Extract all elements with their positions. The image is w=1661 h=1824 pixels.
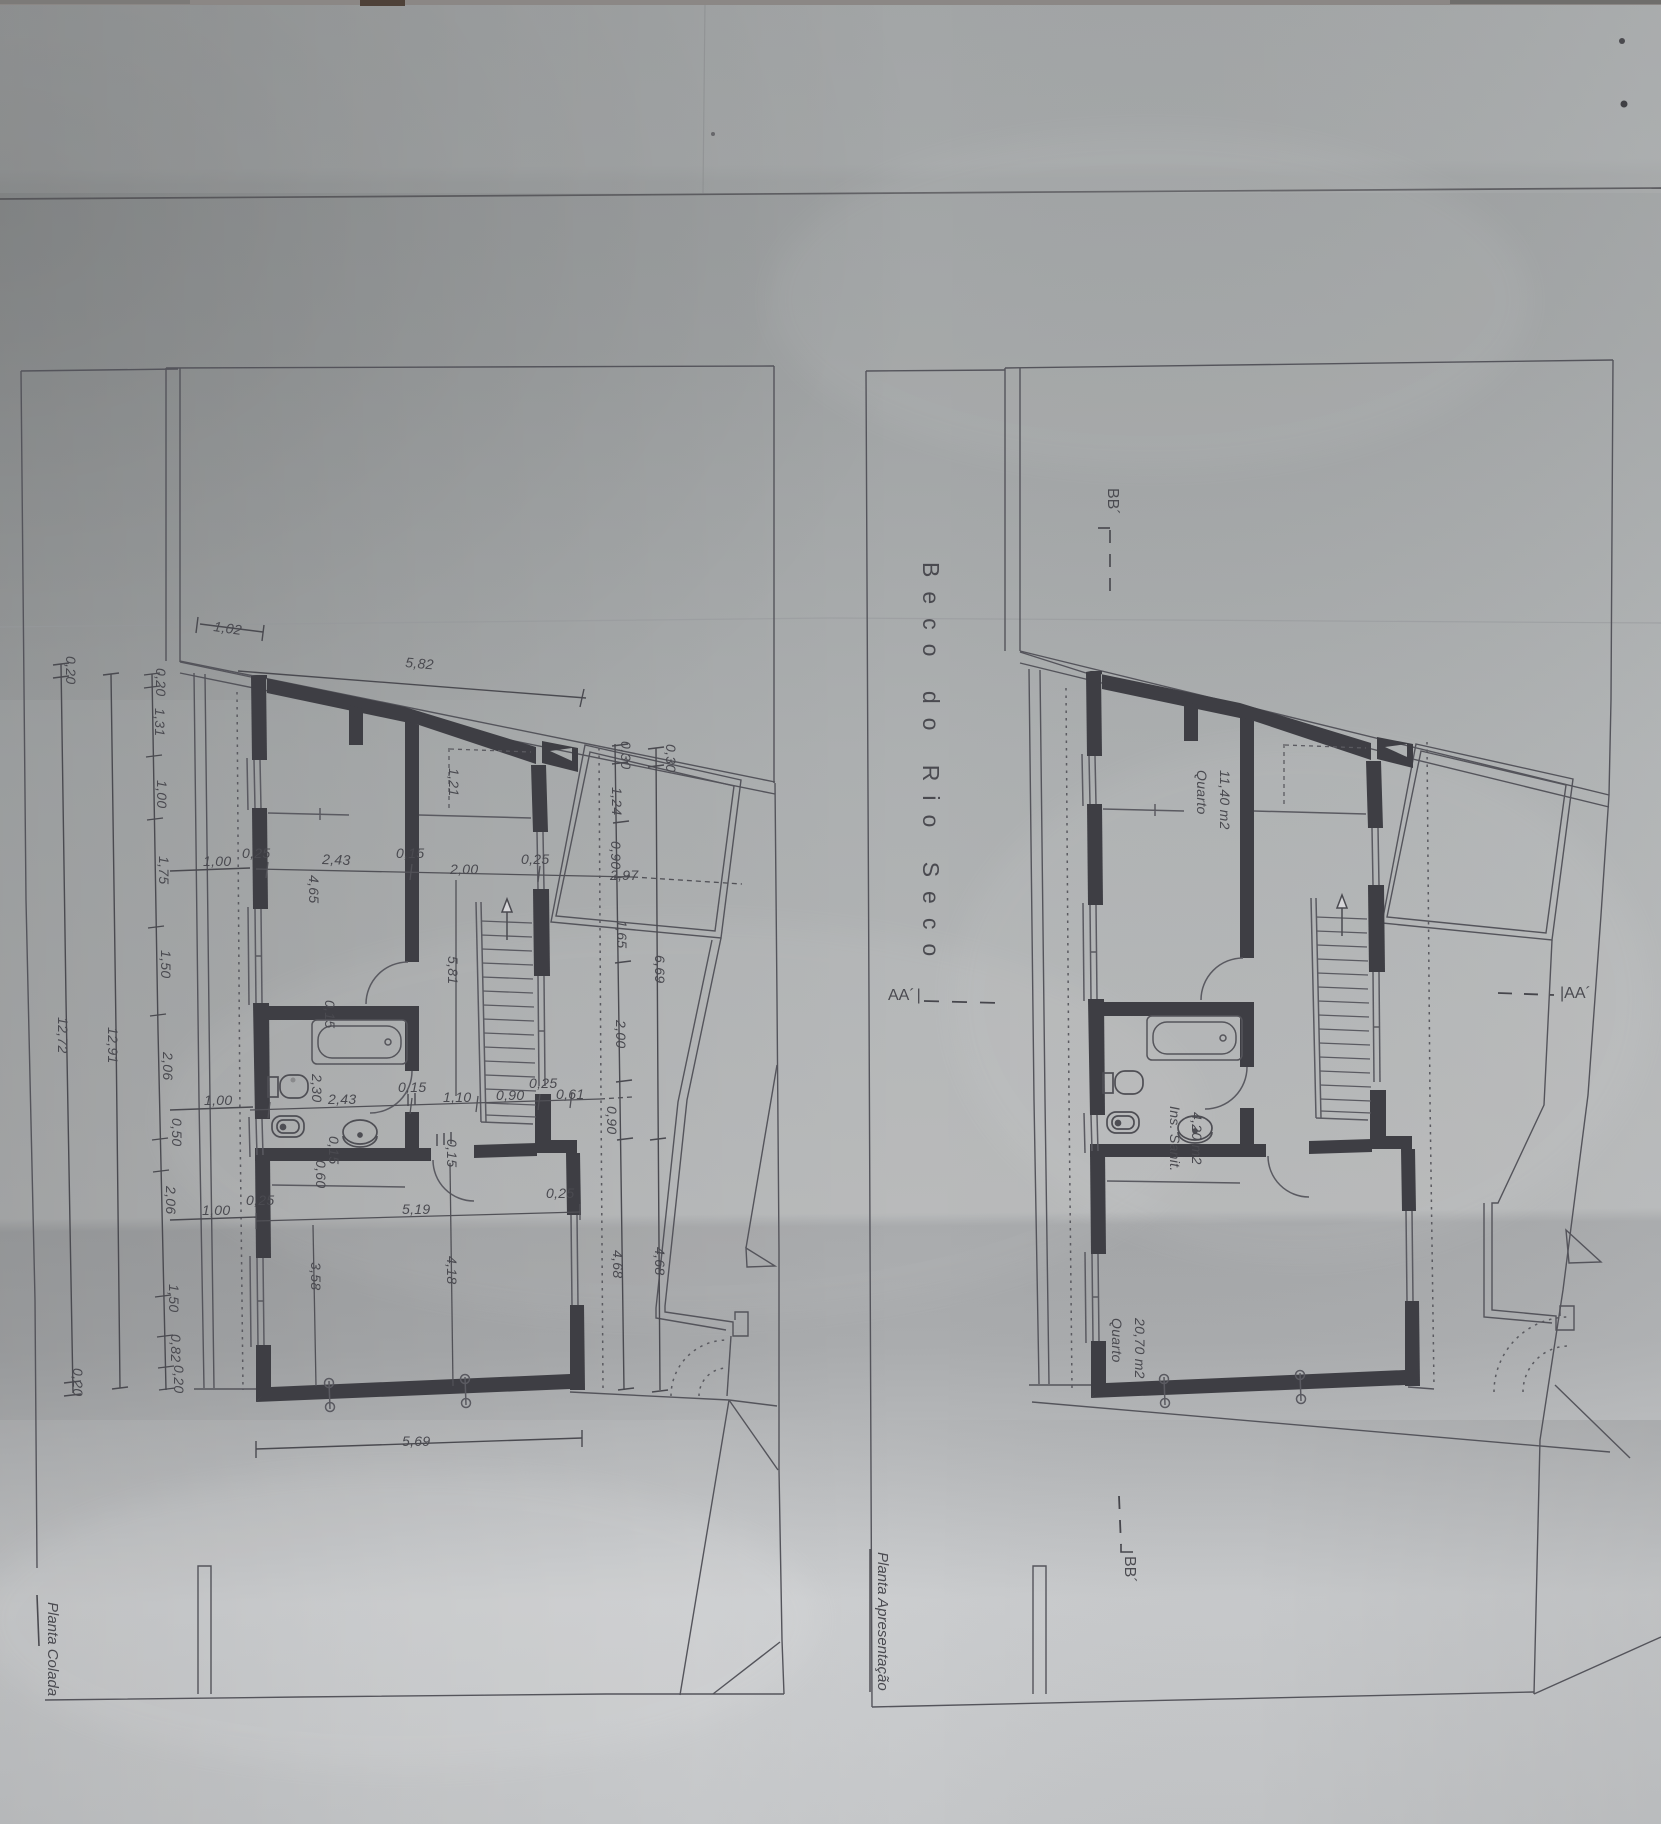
svg-text:2,97: 2,97 [609,867,639,883]
svg-text:2,00: 2,00 [449,861,478,877]
svg-text:5,69: 5,69 [402,1433,430,1449]
svg-text:Planta Colada: Planta Colada [44,1602,61,1696]
svg-text:1,00: 1,00 [202,1202,230,1218]
svg-text:12,91: 12,91 [105,1027,121,1064]
svg-text:0,50: 0,50 [169,1118,185,1146]
svg-text:12,72: 12,72 [55,1017,71,1054]
svg-text:2,43: 2,43 [327,1091,356,1107]
svg-text:AA´|: AA´| [888,987,921,1004]
svg-text:0,25: 0,25 [529,1075,557,1091]
svg-text:1,65: 1,65 [614,920,630,948]
svg-text:BB´: BB´ [1104,488,1121,515]
svg-text:0,82: 0,82 [168,1334,184,1362]
svg-text:|AA´: |AA´ [1560,985,1591,1002]
svg-text:1,31: 1,31 [152,708,168,736]
svg-text:1,00: 1,00 [204,1092,232,1108]
svg-text:1,24: 1,24 [609,787,625,815]
svg-text:2,06: 2,06 [163,1185,179,1214]
svg-text:0,25: 0,25 [521,851,549,867]
svg-text:2,43: 2,43 [321,851,351,868]
svg-text:4,68: 4,68 [610,1250,626,1278]
svg-text:0,15: 0,15 [396,845,424,861]
svg-text:1,50: 1,50 [158,950,174,978]
svg-text:2,00: 2,00 [613,1019,629,1048]
svg-text:5,19: 5,19 [402,1201,430,1217]
svg-text:1,10: 1,10 [443,1089,471,1105]
svg-text:0,25: 0,25 [246,1192,274,1208]
svg-text:0,15: 0,15 [326,1136,342,1164]
svg-text:4,20 m2: 4,20 m2 [1189,1112,1205,1165]
svg-text:Beco do Rio Seco: Beco do Rio Seco [918,562,944,970]
svg-text:0,30: 0,30 [663,744,679,772]
svg-text:0,25: 0,25 [242,845,270,861]
svg-text:0,20: 0,20 [70,1368,86,1396]
svg-text:1,50: 1,50 [166,1284,182,1312]
svg-text:0,15: 0,15 [444,1139,460,1167]
svg-text:4,18: 4,18 [444,1256,460,1284]
svg-text:0,90: 0,90 [604,1106,620,1134]
svg-text:0,15: 0,15 [398,1079,426,1095]
svg-text:0,25: 0,25 [546,1185,574,1201]
svg-text:0,90: 0,90 [608,841,624,869]
svg-text:1,00: 1,00 [203,853,231,869]
svg-text:6,69: 6,69 [652,955,668,983]
svg-text:0,90: 0,90 [496,1087,524,1103]
svg-text:0,20: 0,20 [153,668,169,696]
svg-text:3,58: 3,58 [308,1262,324,1290]
svg-text:5,81: 5,81 [445,956,461,984]
svg-text:2,30: 2,30 [309,1073,325,1102]
svg-text:0,15: 0,15 [322,1000,338,1028]
svg-text:4,65: 4,65 [306,875,322,903]
svg-text:2,06: 2,06 [160,1051,176,1080]
svg-text:11,40 m2: 11,40 m2 [1217,770,1233,830]
svg-text:20,70 m2: 20,70 m2 [1132,1317,1148,1379]
svg-text:Ins. Sanit.: Ins. Sanit. [1167,1106,1183,1172]
svg-text:1,00: 1,00 [154,780,170,808]
svg-text:0,20: 0,20 [63,656,79,684]
svg-text:Planta Apresentação: Planta Apresentação [874,1552,891,1691]
svg-text:1,75: 1,75 [156,856,172,884]
svg-text:BB´: BB´ [1121,1556,1138,1583]
svg-text:Quarto: Quarto [1109,1318,1125,1363]
svg-text:4,68: 4,68 [652,1247,668,1275]
svg-text:5,82: 5,82 [405,654,435,672]
svg-text:0,61: 0,61 [556,1086,584,1102]
svg-text:0,30: 0,30 [618,741,634,769]
svg-text:0,20: 0,20 [171,1365,187,1393]
svg-text:1,21: 1,21 [446,768,462,796]
svg-text:Quarto: Quarto [1194,770,1210,815]
